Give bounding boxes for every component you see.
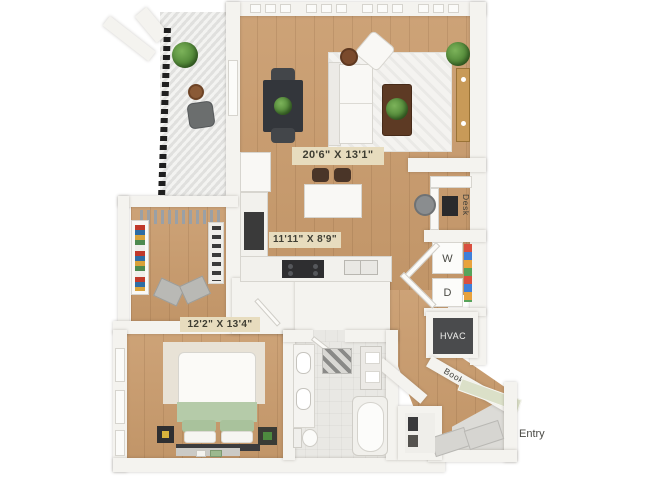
nightstand <box>157 426 174 443</box>
desk-chair <box>414 194 436 216</box>
wall-closet-top <box>118 196 238 207</box>
wall-bath-top-1 <box>283 330 313 342</box>
vanity-sink <box>296 352 311 374</box>
dining-chair <box>271 128 295 143</box>
window-pane <box>433 4 444 13</box>
bar-stool <box>312 168 329 182</box>
window-pane <box>362 4 373 13</box>
balcony-chair <box>186 100 215 129</box>
window-pane <box>448 4 459 13</box>
bed-pillow-white <box>221 431 253 443</box>
window-pane <box>306 4 317 13</box>
window-pane <box>250 4 261 13</box>
dryer-box: D <box>432 278 463 307</box>
hvac-label: HVAC <box>440 331 466 341</box>
washer-label: W <box>442 253 452 265</box>
bed-blanket <box>177 402 257 422</box>
bar-stool <box>334 168 351 182</box>
bedroom-dimensions: 12'2" X 13'4" <box>180 317 260 332</box>
closet-shelf-left <box>131 220 149 295</box>
dryer-label: D <box>444 287 452 299</box>
wall-closet-left <box>118 196 129 334</box>
floor-books <box>196 450 206 457</box>
kitchen-island <box>304 184 362 218</box>
side-table <box>340 48 358 66</box>
bedroom-rug <box>176 448 240 456</box>
sofa-seat <box>339 64 373 144</box>
detergent-shelf <box>464 244 472 302</box>
window-pane <box>321 4 332 13</box>
wall-desk-nook-top <box>408 158 486 172</box>
console-table <box>456 68 470 142</box>
dining-table-plant <box>274 97 292 115</box>
hvac-unit: HVAC <box>433 318 473 354</box>
corner-plant <box>446 42 470 66</box>
bedroom-window <box>115 348 125 382</box>
living-room-dimensions: 20'6" X 13'1" <box>292 147 384 165</box>
fridge <box>240 152 271 192</box>
entry-bench-interior <box>405 413 435 453</box>
nightstand <box>258 427 277 445</box>
toilet-tank <box>293 428 302 448</box>
bed-pillow-white <box>184 431 216 443</box>
bathroom-cabinet <box>360 346 382 390</box>
floor-plan: Bookshelf 20'6" X 13'1" <box>0 0 670 480</box>
window-pane <box>392 4 403 13</box>
wall-kitchen-bottom-b <box>295 278 390 330</box>
window-pane <box>265 4 276 13</box>
bathtub <box>352 396 388 456</box>
window-pane <box>336 4 347 13</box>
wall-bottom <box>113 458 445 472</box>
window-pane <box>280 4 291 13</box>
toilet-bowl <box>302 429 318 447</box>
kitchen-dimensions: 11'11" X 8'9" <box>269 232 341 248</box>
desk <box>430 176 472 188</box>
entry-label: Entry <box>519 428 545 440</box>
wall-laundry-top <box>424 230 486 242</box>
floor-books <box>210 450 222 457</box>
window-pane <box>418 4 429 13</box>
vanity-sink <box>296 388 311 410</box>
desk-label: Desk <box>461 194 471 216</box>
bedroom-window <box>115 390 125 424</box>
window-pane <box>377 4 388 13</box>
balcony-door <box>228 60 238 116</box>
kitchen-sink <box>344 260 378 275</box>
bed-duvet <box>178 352 256 404</box>
balcony-plant <box>172 42 198 68</box>
balcony-table <box>188 84 204 100</box>
laptop <box>442 196 458 216</box>
closet-shelf-right <box>208 222 224 284</box>
stove <box>282 260 324 278</box>
linen-shelves <box>322 348 352 374</box>
wall-oven <box>244 212 264 250</box>
bedroom-window <box>115 430 125 456</box>
coffee-table-plant <box>386 98 408 120</box>
